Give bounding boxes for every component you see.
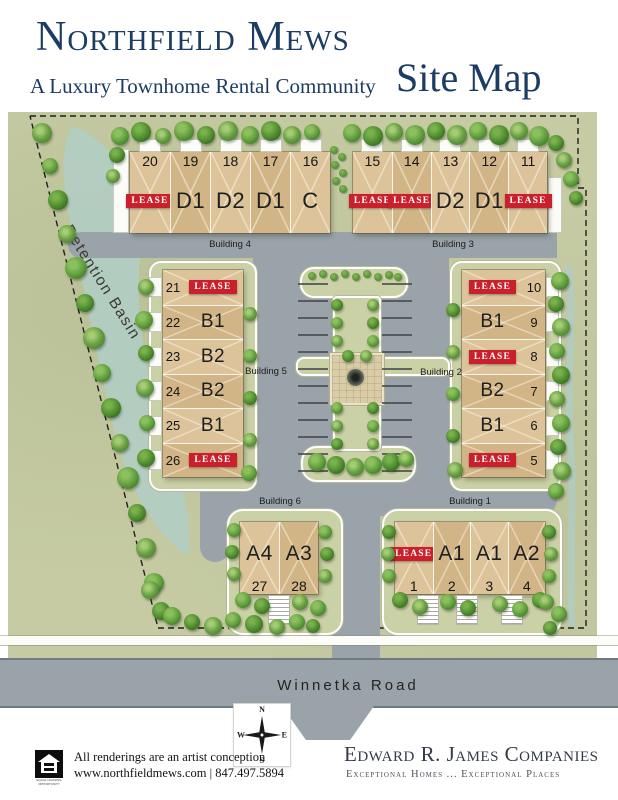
tree <box>243 391 257 405</box>
building-2: LEASE10B19LEASE8B27B16LEASE5 <box>462 270 545 477</box>
unit-type-area: B2 <box>183 380 243 402</box>
shrub <box>308 272 316 280</box>
tree <box>218 121 238 141</box>
shrub <box>363 270 371 278</box>
unit-number: 11 <box>521 153 536 169</box>
unit-number: 22 <box>163 315 183 330</box>
unit-type-area: B1 <box>183 415 243 437</box>
tree <box>139 415 155 431</box>
lease-badge: LEASE <box>469 453 516 467</box>
unit-type-area: A1 <box>434 532 471 575</box>
tree <box>367 420 379 432</box>
unit-number: 14 <box>404 153 420 169</box>
unit-type-area: B2 <box>462 380 523 402</box>
tree <box>552 366 570 384</box>
tree <box>542 569 556 583</box>
tree <box>552 414 570 432</box>
unit-13: 13D2 <box>431 152 470 233</box>
unit-number: 6 <box>523 418 545 433</box>
tree <box>363 126 383 146</box>
tree <box>141 581 159 599</box>
tree <box>83 327 105 349</box>
tree <box>308 453 326 471</box>
entry-walk <box>261 140 281 151</box>
unit-20: 20LEASE <box>130 152 170 233</box>
tree <box>398 451 414 467</box>
tree <box>42 158 58 174</box>
unit-type-area: A4 <box>240 532 279 575</box>
tree <box>197 126 215 144</box>
shrub <box>330 146 338 154</box>
unit-number: 27 <box>252 578 268 594</box>
tree <box>346 458 364 476</box>
unit-type: B2 <box>201 346 225 368</box>
compass-star-icon <box>242 715 282 755</box>
unit-15: 15LEASE <box>353 152 392 233</box>
shrub <box>385 271 393 279</box>
tree <box>367 335 379 347</box>
north-driveway <box>68 232 557 258</box>
tree <box>440 594 456 610</box>
developer-name: Edward R. James Companies <box>344 742 599 767</box>
unit-4: A24 <box>508 522 546 594</box>
unit-22: 22B1 <box>163 305 243 340</box>
unit-type-area: LEASE <box>462 453 523 467</box>
shrub <box>339 185 347 193</box>
lease-badge: LEASE <box>469 280 516 294</box>
unit-number: 4 <box>523 578 531 594</box>
unit-25: 25B1 <box>163 408 243 443</box>
parking-stall-line <box>382 436 412 438</box>
unit-26: 26LEASE <box>163 443 243 478</box>
tree <box>331 317 343 329</box>
unit-type-area: B1 <box>183 311 243 333</box>
tree <box>128 504 146 522</box>
parking-stall-line <box>382 385 412 387</box>
tree <box>427 122 445 140</box>
unit-number: 23 <box>163 349 183 364</box>
tree <box>243 307 257 321</box>
tree <box>320 547 334 561</box>
unit-number: 21 <box>163 280 183 295</box>
parking-stall-line <box>382 402 412 404</box>
unit-type-area: LEASE <box>130 169 170 233</box>
tree <box>542 525 556 539</box>
lease-badge: LEASE <box>469 350 516 364</box>
entry-walk <box>181 140 201 151</box>
building-6: A427A328 <box>240 522 318 594</box>
tree <box>492 596 508 612</box>
tree <box>310 600 326 616</box>
unit-number: 7 <box>523 384 545 399</box>
developer-tagline: Exceptional Homes ... Exceptional Places <box>346 769 560 780</box>
unit-number: 10 <box>523 280 545 295</box>
unit-12: 12D1 <box>469 152 508 233</box>
tree <box>117 467 139 489</box>
tree <box>446 303 460 317</box>
tree <box>65 257 87 279</box>
tree <box>327 456 345 474</box>
unit-number: 9 <box>523 315 545 330</box>
tree <box>551 272 569 290</box>
parking-stall-line <box>382 419 412 421</box>
unit-number: 1 <box>410 578 418 594</box>
unit-type: D1 <box>475 188 504 214</box>
unit-type-area: D1 <box>251 169 290 233</box>
tree <box>489 125 509 145</box>
tree <box>543 621 557 635</box>
tree <box>155 128 171 144</box>
tree <box>269 619 285 635</box>
building-4-label: Building 4 <box>209 239 251 250</box>
compass-north: N <box>259 705 265 714</box>
unit-type: D1 <box>256 188 285 214</box>
parking-stall-line <box>298 402 328 404</box>
tree <box>529 126 549 146</box>
tree <box>367 402 379 414</box>
unit-type-area: D2 <box>432 169 470 233</box>
tree <box>184 614 200 630</box>
parking-stall-line <box>298 283 328 285</box>
tree <box>412 599 428 615</box>
tree <box>292 594 308 610</box>
tree <box>331 438 343 450</box>
parking-stall-line <box>382 470 412 472</box>
unit-type: B2 <box>201 380 225 402</box>
tree <box>101 398 121 418</box>
tree <box>367 317 379 329</box>
stream <box>569 268 572 624</box>
unit-8: LEASE8 <box>462 339 545 374</box>
unit-type: A3 <box>286 542 313 566</box>
unit-type-area: D2 <box>211 169 250 233</box>
tree <box>106 169 120 183</box>
tree <box>552 318 570 336</box>
unit-type: B1 <box>480 311 504 333</box>
shrub <box>332 177 340 185</box>
building-2-label: Building 2 <box>420 367 462 378</box>
building-1: LEASE1A12A13A24 <box>395 522 545 594</box>
unit-number: 8 <box>523 349 545 364</box>
equal-housing-text: EQUAL HOUSING OPPORTUNITY <box>31 779 67 786</box>
unit-type-area: LEASE <box>462 350 523 364</box>
tree <box>261 121 281 141</box>
unit-type: C <box>302 188 318 214</box>
unit-16: 16C <box>290 152 330 233</box>
tree <box>569 191 583 205</box>
tree <box>447 125 467 145</box>
tree <box>58 225 76 243</box>
unit-type: D2 <box>436 188 465 214</box>
unit-type-area: A1 <box>471 532 508 575</box>
unit-type-area: D1 <box>470 169 508 233</box>
tree <box>447 462 463 478</box>
shrub <box>331 161 339 169</box>
equal-housing-icon <box>35 750 63 778</box>
shrub <box>374 273 382 281</box>
parking-stall-line <box>382 368 412 370</box>
tree <box>469 122 487 140</box>
parking-stall-line <box>298 317 328 319</box>
tree <box>550 439 566 455</box>
unit-number: 3 <box>485 578 493 594</box>
unit-type: A2 <box>513 542 540 566</box>
tree <box>306 619 320 633</box>
unit-24: 24B2 <box>163 374 243 409</box>
unit-number: 17 <box>263 153 279 169</box>
tree <box>549 391 565 407</box>
unit-type: A1 <box>476 542 503 566</box>
parking-stall-line <box>382 351 412 353</box>
lease-badge: LEASE <box>390 547 437 561</box>
tree <box>381 547 395 561</box>
unit-type-area: A3 <box>280 532 318 575</box>
unit-23: 23B2 <box>163 339 243 374</box>
building-5-label: Building 5 <box>245 366 287 377</box>
tree <box>538 594 554 610</box>
unit-28: A328 <box>279 522 318 594</box>
unit-type-area: LEASE <box>183 453 243 467</box>
tree <box>32 123 52 143</box>
unit-type-area: LEASE <box>395 532 433 575</box>
unit-type-area: LEASE <box>393 169 431 233</box>
building-4: 20LEASE19D118D217D116C <box>130 152 330 233</box>
lease-badge: LEASE <box>189 280 236 294</box>
unit-10: LEASE10 <box>462 270 545 305</box>
unit-9: B19 <box>462 305 545 340</box>
unit-type-area: LEASE <box>183 280 243 294</box>
lease-badge: LEASE <box>189 453 236 467</box>
tree <box>204 617 222 635</box>
parking-stall-line <box>298 419 328 421</box>
unit-7: B27 <box>462 374 545 409</box>
unit-number: 28 <box>291 578 307 594</box>
tree <box>304 124 320 140</box>
tree <box>446 345 460 359</box>
tree <box>405 125 425 145</box>
shrub <box>338 153 346 161</box>
tree <box>382 525 396 539</box>
tree <box>563 171 579 187</box>
tree <box>318 525 332 539</box>
artist-conception-disclaimer: All renderings are an artist conception <box>74 750 265 765</box>
tree <box>136 379 154 397</box>
unit-18: 18D2 <box>210 152 250 233</box>
tree <box>512 601 528 617</box>
unit-type: D1 <box>176 188 205 214</box>
shrub <box>330 273 338 281</box>
tree <box>392 592 408 608</box>
lease-badge: LEASE <box>126 194 173 208</box>
tree <box>548 135 564 151</box>
tree <box>331 335 343 347</box>
tree <box>135 311 153 329</box>
building-6-label: Building 6 <box>259 496 301 507</box>
unit-type-area: LEASE <box>462 280 523 294</box>
unit-number: 16 <box>303 153 319 169</box>
unit-number: 25 <box>163 418 183 433</box>
unit-number: 13 <box>443 153 459 169</box>
building-1-label: Building 1 <box>449 496 491 507</box>
tree <box>241 465 257 481</box>
lease-badge: LEASE <box>505 194 552 208</box>
tree <box>241 126 259 144</box>
unit-type-area: A2 <box>509 532 546 575</box>
tree <box>111 434 129 452</box>
tree <box>243 349 257 363</box>
tree <box>446 387 460 401</box>
unit-19: 19D1 <box>170 152 210 233</box>
unit-type-area: LEASE <box>509 169 547 233</box>
parking-stall-line <box>298 368 328 370</box>
compass-west: W <box>237 731 245 740</box>
tree <box>283 126 301 144</box>
unit-type: B1 <box>480 415 504 437</box>
tree <box>367 438 379 450</box>
unit-type: A4 <box>246 542 273 566</box>
unit-number: 19 <box>183 153 199 169</box>
tree <box>549 343 565 359</box>
unit-number: 18 <box>223 153 239 169</box>
unit-27: A427 <box>240 522 279 594</box>
unit-type: B2 <box>480 380 504 402</box>
tree <box>136 538 156 558</box>
sidewalk <box>0 636 618 645</box>
unit-21: 21LEASE <box>163 270 243 305</box>
parking-stall-line <box>298 334 328 336</box>
tree <box>551 606 567 622</box>
tree <box>548 483 564 499</box>
tree <box>382 453 400 471</box>
unit-number: 15 <box>365 153 381 169</box>
tree <box>138 345 154 361</box>
tree <box>137 449 155 467</box>
building-3: 15LEASE14LEASE13D212D111LEASE <box>353 152 547 233</box>
tree <box>331 402 343 414</box>
entry-walk <box>301 140 321 151</box>
compass-east: E <box>282 731 287 740</box>
shrub <box>352 273 360 281</box>
tree <box>243 433 257 447</box>
parking-stall-line <box>298 436 328 438</box>
parking-stall-line <box>382 300 412 302</box>
tree <box>342 350 354 362</box>
unit-type: A1 <box>438 542 465 566</box>
tree <box>367 299 379 311</box>
tree <box>331 420 343 432</box>
unit-type: B1 <box>201 415 225 437</box>
tree <box>510 122 528 140</box>
unit-number: 2 <box>448 578 456 594</box>
unit-number: 26 <box>163 453 183 468</box>
parking-stall-line <box>298 351 328 353</box>
tree <box>235 592 251 608</box>
tree <box>225 612 241 628</box>
tree <box>556 152 572 168</box>
unit-number: 20 <box>142 153 158 169</box>
unit-number: 24 <box>163 384 183 399</box>
unit-3: A13 <box>470 522 508 594</box>
shrub <box>394 273 402 281</box>
website-and-phone: www.northfieldmews.com | 847.497.5894 <box>74 766 284 781</box>
unit-2: A12 <box>433 522 471 594</box>
tree <box>227 567 241 581</box>
tree <box>331 299 343 311</box>
unit-14: 14LEASE <box>392 152 431 233</box>
unit-type-area: B2 <box>183 346 243 368</box>
shrub <box>341 270 349 278</box>
tree <box>225 545 239 559</box>
unit-1: LEASE1 <box>395 522 433 594</box>
tree <box>174 121 194 141</box>
unit-type: B1 <box>201 311 225 333</box>
tree <box>460 600 476 616</box>
tree <box>48 190 68 210</box>
unit-type: D2 <box>216 188 245 214</box>
tree <box>446 429 460 443</box>
tree <box>382 569 396 583</box>
unit-11: 11LEASE <box>508 152 547 233</box>
tree <box>289 614 305 630</box>
tree <box>360 350 372 362</box>
unit-type-area: B1 <box>462 311 523 333</box>
unit-type-area: B1 <box>462 415 523 437</box>
building-3-label: Building 3 <box>432 239 474 250</box>
building-5: 21LEASE22B123B224B225B126LEASE <box>163 270 243 477</box>
tree <box>76 294 94 312</box>
shrub <box>339 169 347 177</box>
parking-stall-line <box>298 300 328 302</box>
parking-stall-line <box>382 317 412 319</box>
parking-stall-line <box>382 334 412 336</box>
tree <box>318 569 332 583</box>
unit-type-area: LEASE <box>353 169 392 233</box>
tree <box>254 598 270 614</box>
entry-walk <box>221 140 241 151</box>
unit-17: 17D1 <box>250 152 290 233</box>
tree <box>93 364 111 382</box>
unit-type-area: C <box>291 169 330 233</box>
tree <box>131 122 151 142</box>
tree <box>553 462 571 480</box>
tree <box>227 523 241 537</box>
tree <box>548 296 564 312</box>
tree <box>385 123 403 141</box>
tree <box>544 547 558 561</box>
tree <box>111 127 129 145</box>
fountain <box>347 369 364 386</box>
tree <box>245 615 263 633</box>
unit-type-area: D1 <box>171 169 210 233</box>
tree <box>109 147 125 163</box>
tree <box>364 456 382 474</box>
unit-number: 5 <box>523 453 545 468</box>
parking-stall-line <box>298 385 328 387</box>
tree <box>163 607 181 625</box>
unit-5: LEASE5 <box>462 443 545 478</box>
winnetka-road-label: Winnetka Road <box>268 677 428 694</box>
unit-6: B16 <box>462 408 545 443</box>
lease-badge: LEASE <box>388 194 435 208</box>
parking-stall-line <box>382 283 412 285</box>
tree <box>138 279 154 295</box>
unit-number: 12 <box>482 153 498 169</box>
tree <box>343 124 361 142</box>
shrub <box>319 270 327 278</box>
